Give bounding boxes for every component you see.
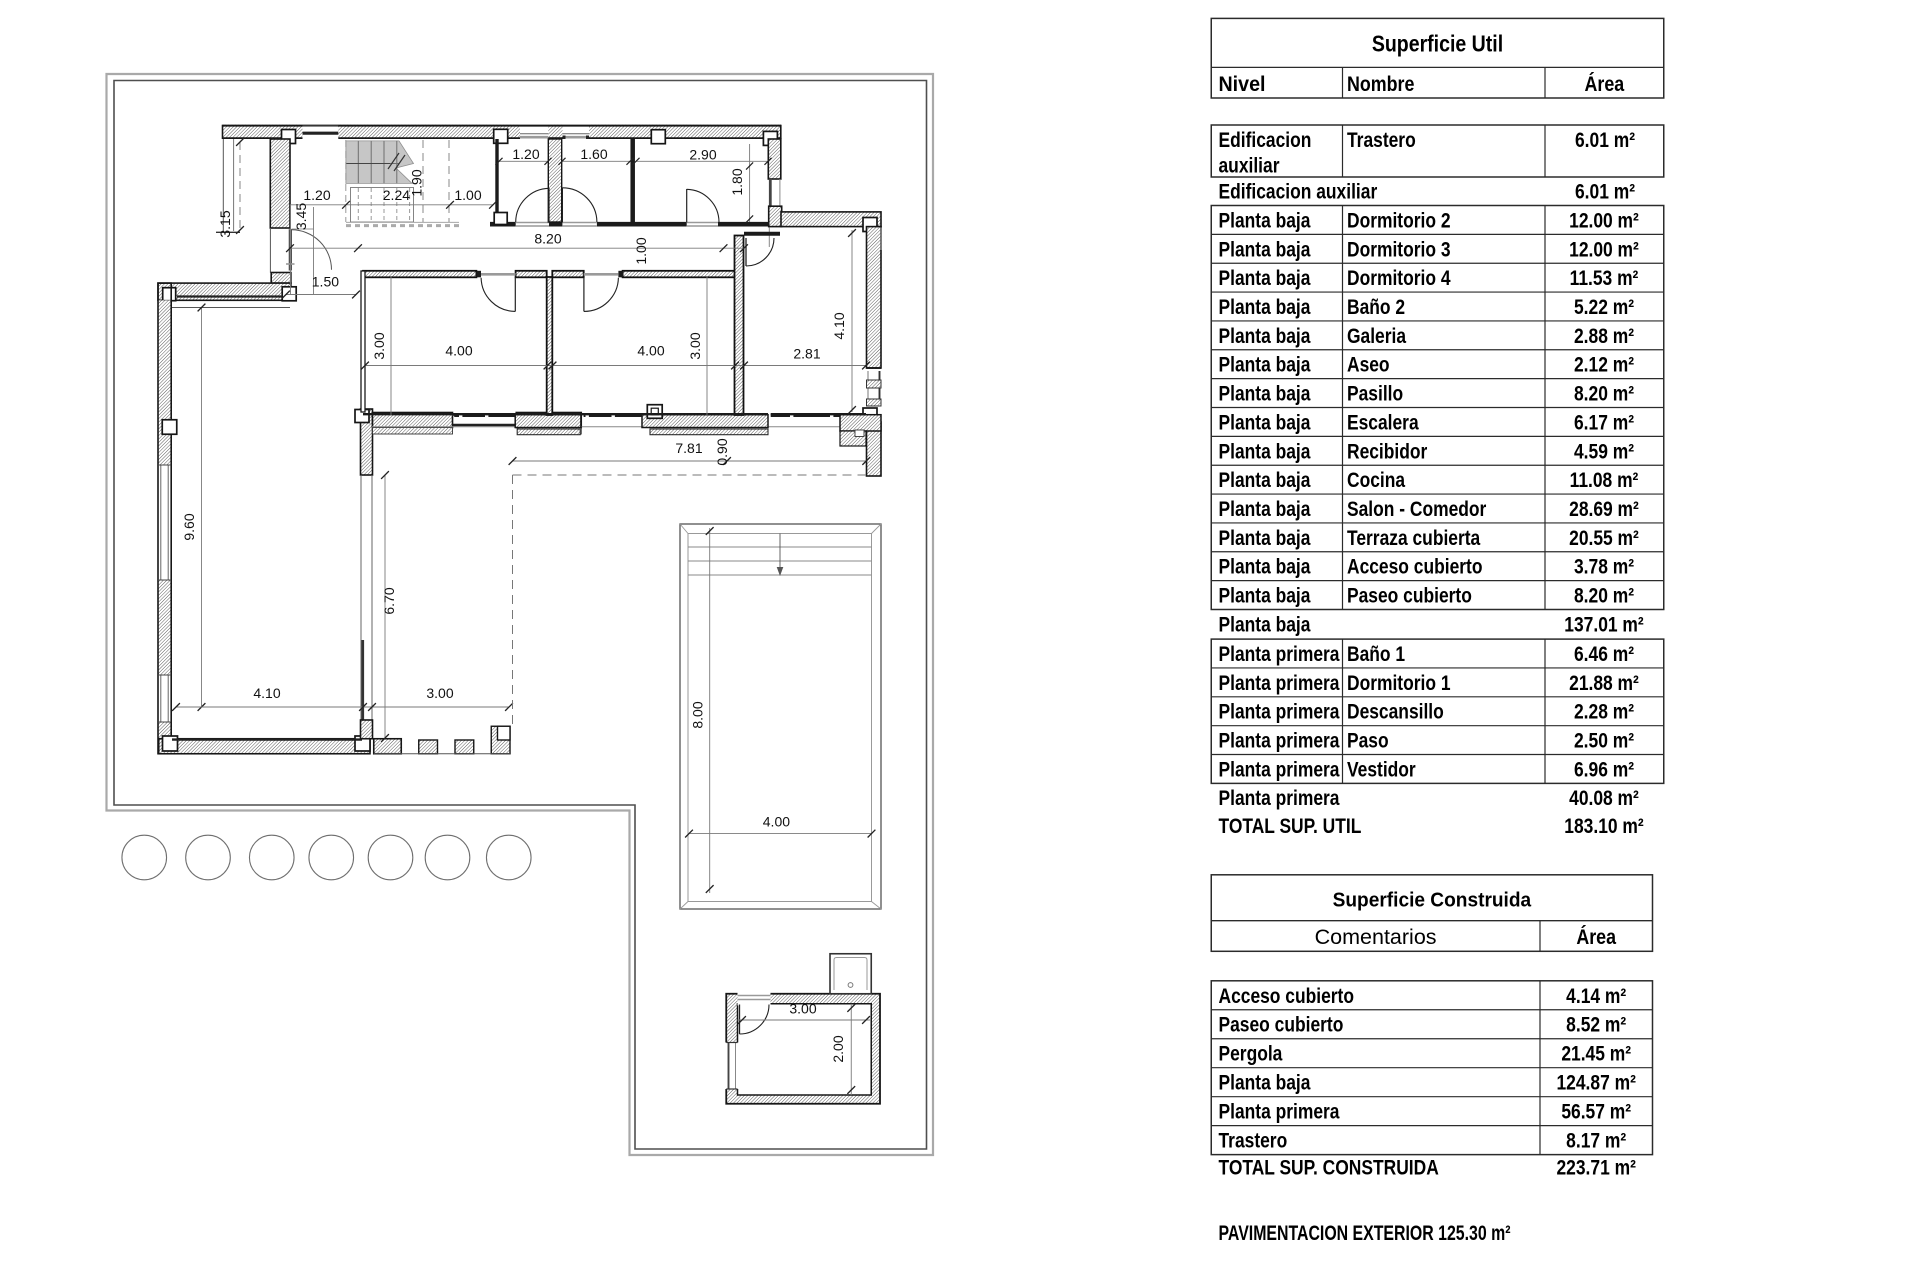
svg-text:21.88 m²: 21.88 m² <box>1569 672 1639 695</box>
svg-text:TOTAL SUP. CONSTRUIDA: TOTAL SUP. CONSTRUIDA <box>1218 1157 1438 1180</box>
svg-text:8.00: 8.00 <box>690 701 706 728</box>
svg-text:Salon - Comedor: Salon - Comedor <box>1347 499 1487 522</box>
svg-text:Área: Área <box>1576 924 1617 949</box>
svg-text:12.00 m²: 12.00 m² <box>1569 210 1639 233</box>
svg-text:Planta baja: Planta baja <box>1218 297 1310 320</box>
svg-text:Planta baja: Planta baja <box>1218 499 1310 522</box>
svg-text:Cocina: Cocina <box>1347 470 1405 493</box>
svg-text:4.10: 4.10 <box>253 685 280 701</box>
svg-text:11.53 m²: 11.53 m² <box>1570 268 1639 291</box>
svg-text:Planta baja: Planta baja <box>1218 1072 1310 1095</box>
svg-text:3.78 m²: 3.78 m² <box>1574 556 1635 579</box>
svg-text:Dormitorio 3: Dormitorio 3 <box>1347 239 1451 262</box>
svg-text:Trastero: Trastero <box>1218 1130 1287 1153</box>
svg-text:Nivel: Nivel <box>1218 73 1265 97</box>
svg-text:Baño 2: Baño 2 <box>1347 297 1405 320</box>
svg-text:21.45 m²: 21.45 m² <box>1561 1043 1631 1066</box>
svg-text:Área: Área <box>1585 71 1626 96</box>
svg-text:Superficie Construida: Superficie Construida <box>1333 888 1532 911</box>
svg-text:TOTAL SUP. UTIL: TOTAL SUP. UTIL <box>1218 816 1361 839</box>
svg-text:3.15: 3.15 <box>217 210 233 237</box>
svg-text:56.57 m²: 56.57 m² <box>1561 1101 1631 1124</box>
svg-text:1.90: 1.90 <box>409 169 425 196</box>
svg-text:2.12 m²: 2.12 m² <box>1574 354 1635 377</box>
svg-text:Comentarios: Comentarios <box>1315 925 1437 949</box>
svg-text:183.10 m²: 183.10 m² <box>1564 816 1644 839</box>
svg-text:Baño 1: Baño 1 <box>1347 644 1405 667</box>
svg-text:Planta baja: Planta baja <box>1218 412 1310 435</box>
svg-text:124.87 m²: 124.87 m² <box>1556 1072 1636 1095</box>
svg-text:3.00: 3.00 <box>687 332 703 359</box>
svg-text:Pergola: Pergola <box>1218 1043 1282 1066</box>
svg-text:Nombre: Nombre <box>1347 73 1414 97</box>
svg-text:Planta primera: Planta primera <box>1218 672 1339 695</box>
svg-text:Planta baja: Planta baja <box>1218 441 1310 464</box>
svg-text:Vestidor: Vestidor <box>1347 759 1416 782</box>
svg-text:Edificacion: Edificacion <box>1218 130 1311 153</box>
svg-text:3.45: 3.45 <box>293 203 309 230</box>
svg-text:Planta baja: Planta baja <box>1218 354 1310 377</box>
svg-text:6.01 m²: 6.01 m² <box>1575 181 1636 204</box>
svg-text:Planta baja: Planta baja <box>1218 268 1310 291</box>
svg-text:4.10: 4.10 <box>831 312 847 339</box>
svg-text:8.52 m²: 8.52 m² <box>1566 1014 1627 1037</box>
svg-text:Planta baja: Planta baja <box>1218 470 1310 493</box>
svg-text:Descansillo: Descansillo <box>1347 701 1444 724</box>
svg-text:Acceso cubierto: Acceso cubierto <box>1347 556 1483 579</box>
svg-text:8.20 m²: 8.20 m² <box>1574 585 1635 608</box>
svg-text:Paseo cubierto: Paseo cubierto <box>1218 1014 1343 1037</box>
svg-text:4.00: 4.00 <box>763 814 790 830</box>
svg-text:1.20: 1.20 <box>512 146 539 162</box>
svg-text:Dormitorio 1: Dormitorio 1 <box>1347 672 1451 695</box>
svg-text:7.81: 7.81 <box>675 440 702 456</box>
svg-text:8.20 m²: 8.20 m² <box>1574 383 1635 406</box>
svg-text:3.00: 3.00 <box>789 1001 816 1017</box>
svg-text:Paso: Paso <box>1347 730 1389 753</box>
svg-text:3.00: 3.00 <box>426 685 453 701</box>
svg-text:Aseo: Aseo <box>1347 354 1390 377</box>
svg-text:6.46 m²: 6.46 m² <box>1574 644 1635 667</box>
svg-text:Terraza cubierta: Terraza cubierta <box>1347 527 1480 550</box>
svg-text:0.90: 0.90 <box>714 438 730 465</box>
svg-text:1.80: 1.80 <box>729 168 745 195</box>
svg-text:2.90: 2.90 <box>689 147 716 163</box>
svg-text:Dormitorio 4: Dormitorio 4 <box>1347 268 1451 291</box>
svg-text:5.22 m²: 5.22 m² <box>1574 297 1635 320</box>
svg-text:Edificacion auxiliar: Edificacion auxiliar <box>1218 181 1377 204</box>
svg-text:223.71 m²: 223.71 m² <box>1556 1157 1636 1180</box>
svg-text:Escalera: Escalera <box>1347 412 1419 435</box>
svg-text:8.20: 8.20 <box>534 231 561 247</box>
svg-text:Planta primera: Planta primera <box>1218 730 1339 753</box>
svg-text:1.60: 1.60 <box>580 146 607 162</box>
svg-text:4.00: 4.00 <box>445 342 472 358</box>
svg-text:2.81: 2.81 <box>793 345 820 361</box>
svg-text:Recibidor: Recibidor <box>1347 441 1428 464</box>
svg-text:1.20: 1.20 <box>303 187 330 203</box>
svg-text:6.96 m²: 6.96 m² <box>1574 759 1635 782</box>
svg-text:Superficie Util: Superficie Util <box>1372 30 1503 57</box>
svg-text:1.50: 1.50 <box>312 274 339 290</box>
svg-text:auxiliar: auxiliar <box>1218 155 1279 178</box>
svg-text:Planta primera: Planta primera <box>1218 644 1339 667</box>
svg-text:6.17 m²: 6.17 m² <box>1574 412 1635 435</box>
svg-text:Galeria: Galeria <box>1347 325 1406 348</box>
svg-text:28.69 m²: 28.69 m² <box>1569 499 1639 522</box>
svg-text:6.70: 6.70 <box>381 587 397 614</box>
svg-text:1.00: 1.00 <box>633 237 649 264</box>
svg-text:PAVIMENTACION EXTERIOR 125.30: PAVIMENTACION EXTERIOR 125.30 m² <box>1218 1223 1510 1246</box>
svg-text:Planta baja: Planta baja <box>1218 585 1310 608</box>
svg-text:1.00: 1.00 <box>454 187 481 203</box>
svg-text:Planta primera: Planta primera <box>1218 759 1339 782</box>
svg-text:Dormitorio 2: Dormitorio 2 <box>1347 210 1451 233</box>
svg-text:2.28 m²: 2.28 m² <box>1574 701 1635 724</box>
svg-text:2.00: 2.00 <box>830 1035 846 1062</box>
svg-text:Planta baja: Planta baja <box>1218 239 1310 262</box>
svg-text:Planta primera: Planta primera <box>1218 701 1339 724</box>
svg-text:Pasillo: Pasillo <box>1347 383 1403 406</box>
svg-text:Planta baja: Planta baja <box>1218 383 1310 406</box>
svg-text:6.01 m²: 6.01 m² <box>1575 130 1636 153</box>
svg-text:11.08 m²: 11.08 m² <box>1570 470 1639 493</box>
svg-text:Planta primera: Planta primera <box>1218 787 1339 810</box>
svg-text:137.01 m²: 137.01 m² <box>1564 614 1644 637</box>
svg-text:2.50 m²: 2.50 m² <box>1574 730 1635 753</box>
svg-text:Trastero: Trastero <box>1347 130 1416 153</box>
svg-text:20.55 m²: 20.55 m² <box>1569 527 1639 550</box>
svg-text:Acceso cubierto: Acceso cubierto <box>1218 985 1354 1008</box>
svg-text:4.59 m²: 4.59 m² <box>1574 441 1635 464</box>
svg-text:4.00: 4.00 <box>637 342 664 358</box>
svg-text:4.14 m²: 4.14 m² <box>1566 985 1627 1008</box>
svg-text:40.08 m²: 40.08 m² <box>1569 787 1639 810</box>
svg-text:2.88 m²: 2.88 m² <box>1574 325 1635 348</box>
svg-text:9.60: 9.60 <box>181 513 197 540</box>
svg-text:Planta baja: Planta baja <box>1218 527 1310 550</box>
svg-text:8.17 m²: 8.17 m² <box>1566 1130 1627 1153</box>
svg-text:Planta primera: Planta primera <box>1218 1101 1339 1124</box>
svg-text:Planta baja: Planta baja <box>1218 556 1310 579</box>
svg-text:2.24: 2.24 <box>383 187 410 203</box>
svg-text:3.00: 3.00 <box>371 332 387 359</box>
svg-text:Planta baja: Planta baja <box>1218 614 1310 637</box>
svg-text:Paseo cubierto: Paseo cubierto <box>1347 585 1472 608</box>
svg-text:12.00 m²: 12.00 m² <box>1569 239 1639 262</box>
svg-text:Planta baja: Planta baja <box>1218 325 1310 348</box>
svg-text:Planta baja: Planta baja <box>1218 210 1310 233</box>
